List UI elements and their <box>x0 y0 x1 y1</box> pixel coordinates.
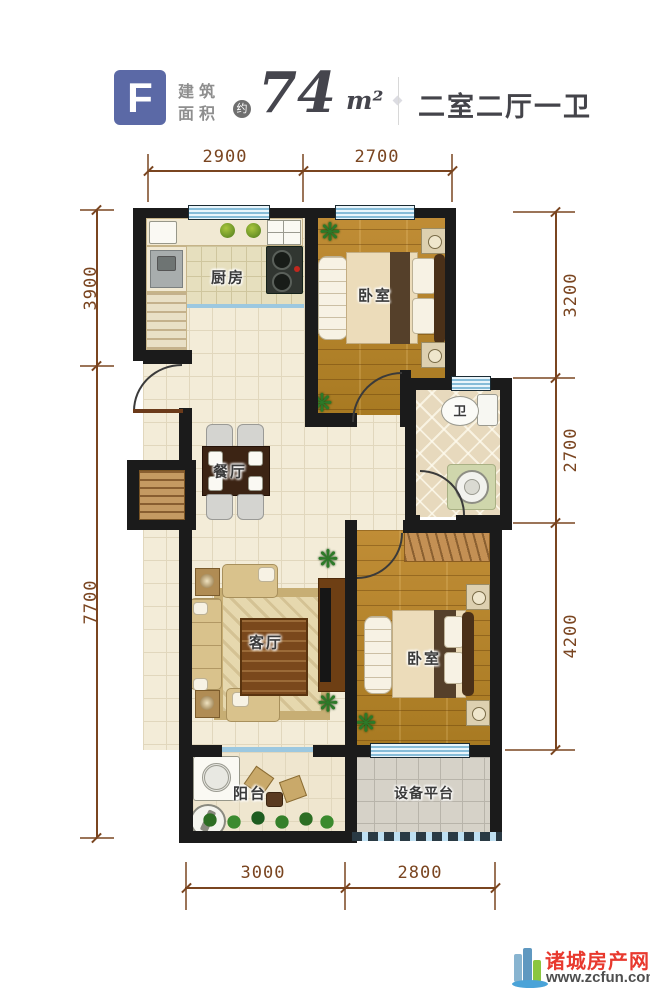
headboard <box>462 612 474 696</box>
header-divider <box>398 77 399 125</box>
room-label-dining: 餐厅 <box>213 461 247 482</box>
dish-rack <box>267 220 301 245</box>
room-label-bedroom-bottom: 卧室 <box>407 648 441 669</box>
room-label-kitchen: 厨房 <box>211 267 245 288</box>
dimension-line-right <box>555 212 557 750</box>
window <box>188 205 270 220</box>
balcony-table <box>266 792 283 807</box>
wall <box>345 520 357 843</box>
dimension-line-bottom <box>185 887 496 889</box>
dim-tick <box>513 522 575 524</box>
coffee-table <box>240 618 308 696</box>
room-label-bedroom-top: 卧室 <box>358 285 392 306</box>
dim-tick <box>302 154 304 202</box>
room-label-bathroom: 卫 <box>453 401 466 420</box>
unit-letter-badge: F <box>114 70 166 125</box>
kitchen-threshold <box>186 304 304 308</box>
lamp-icon <box>200 696 214 710</box>
dining-chair <box>206 494 233 520</box>
bed-foot-bench <box>318 256 348 340</box>
tv-icon <box>320 588 331 682</box>
bed-runner <box>390 252 410 344</box>
dim-value-right-upper: 3200 <box>561 265 579 325</box>
plant-icon: ❋ <box>318 548 339 573</box>
pillow <box>412 258 436 294</box>
dim-value-left-upper: 3900 <box>81 258 99 318</box>
platform-railing <box>352 832 502 841</box>
area-label-line1: 建筑 <box>178 78 220 102</box>
wall <box>143 350 192 364</box>
window <box>335 205 415 220</box>
burner-icon <box>272 272 292 292</box>
pillow <box>444 652 464 684</box>
area-value: 74 <box>258 60 336 126</box>
wall <box>133 208 146 361</box>
wall <box>405 390 416 517</box>
room-label-equipment-platform: 设备平台 <box>394 783 454 803</box>
wall <box>179 528 192 747</box>
entry-door-arc <box>133 364 182 411</box>
wall <box>179 408 192 464</box>
wall <box>490 757 502 837</box>
area-label-line2: 面积 <box>178 100 220 124</box>
wall <box>490 533 502 757</box>
window <box>370 743 470 758</box>
basin-drain <box>464 479 480 495</box>
wardrobe <box>404 532 490 562</box>
nightstand <box>466 700 490 726</box>
dim-value-right-lower: 4200 <box>561 606 579 666</box>
logo-building-bar <box>523 948 532 982</box>
room-label-balcony: 阳台 <box>233 783 267 804</box>
dim-value-top-right: 2700 <box>347 147 407 165</box>
headboard <box>434 254 445 344</box>
room-label-living: 客厅 <box>249 632 283 653</box>
dim-tick <box>451 154 453 202</box>
dim-value-top-left: 2900 <box>195 147 255 165</box>
plant-icon: ❋ <box>356 712 377 737</box>
shoe-cabinet <box>139 470 185 520</box>
throw-pillow <box>193 602 208 615</box>
wall <box>345 745 372 757</box>
dim-value-left-lower: 7700 <box>81 572 99 632</box>
wall <box>403 520 502 533</box>
toilet-tank <box>477 394 498 426</box>
place-setting <box>248 451 263 466</box>
wall <box>500 378 512 530</box>
dim-tick <box>505 749 575 751</box>
potted-plant-icon <box>220 223 235 238</box>
washer-drum <box>202 763 231 792</box>
entry-door-leaf <box>133 409 183 413</box>
wall <box>179 755 193 843</box>
logo-building-bar <box>533 960 541 982</box>
burner-icon <box>272 250 292 270</box>
brand-site-url: www.zcfun.com <box>546 969 650 986</box>
lamp-icon <box>200 574 214 588</box>
nightstand <box>421 228 447 254</box>
brand-logo-icon <box>512 948 548 988</box>
stove-knob <box>294 266 300 272</box>
pillow <box>412 298 436 334</box>
pillow <box>444 616 464 648</box>
dim-tick <box>513 211 575 213</box>
potted-plant-icon <box>246 223 261 238</box>
logo-building-bar <box>514 954 522 982</box>
logo-swoosh <box>512 980 548 988</box>
window <box>451 376 491 391</box>
fridge <box>149 221 177 244</box>
wall <box>468 745 502 757</box>
area-unit: m² <box>346 86 383 115</box>
balcony-threshold <box>222 747 313 752</box>
wall <box>305 413 357 427</box>
wall <box>305 208 318 427</box>
dining-chair <box>237 494 264 520</box>
throw-pillow <box>258 567 275 582</box>
dim-tick <box>147 154 149 202</box>
sink-basin <box>157 256 176 271</box>
bed-foot-bench <box>364 616 392 694</box>
kitchen-lower-cabinet <box>146 292 187 350</box>
dim-tick <box>513 377 575 379</box>
floorplan-page: F 建筑 面积 约 74 m² 二室二厅一卫 ❋ <box>0 0 650 1002</box>
planter-row <box>200 808 335 832</box>
dim-value-bottom-left: 3000 <box>233 863 293 881</box>
layout-summary: 二室二厅一卫 <box>418 85 592 124</box>
wall <box>179 831 352 843</box>
nightstand <box>466 584 490 610</box>
plant-icon: ❋ <box>318 692 339 717</box>
dim-value-right-middle: 2700 <box>561 420 579 480</box>
nightstand <box>421 342 447 368</box>
dim-value-bottom-right: 2800 <box>390 863 450 881</box>
place-setting <box>248 476 263 491</box>
plant-icon: ❋ <box>320 221 341 246</box>
wall <box>445 208 456 390</box>
approx-badge: 约 <box>233 100 251 118</box>
wall <box>405 378 453 390</box>
